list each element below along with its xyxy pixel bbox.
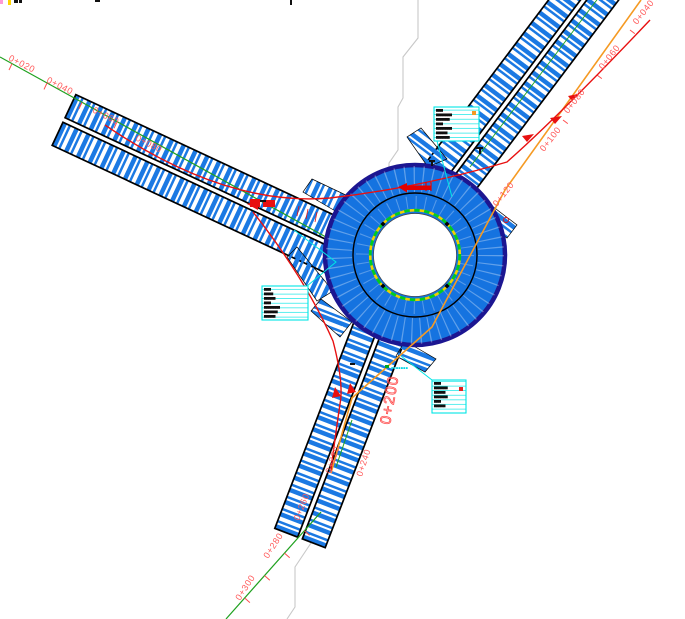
- annotation-line: ▆▆▆: [435, 122, 444, 126]
- marker-cell: [459, 387, 463, 391]
- annotation-line: ▆▆▆: [263, 287, 272, 291]
- centerline-bottom: [226, 512, 321, 619]
- station-label: 0+120: [491, 180, 516, 208]
- annotation-line: ▆▆▆▆: [263, 292, 274, 296]
- bus-stop-mark: [385, 365, 389, 368]
- annotation-line: ▆▆▆: [435, 108, 444, 112]
- annotation-line: ▆▆▆▆▆▆: [433, 395, 448, 399]
- annotation-line: ▆▆▆▆▆: [435, 131, 448, 135]
- station-label: 0+020: [7, 53, 37, 75]
- station-label: 0+040: [631, 0, 656, 26]
- annotation-line: ▆▆▆: [263, 301, 272, 305]
- road-note-text: ▪▪▪▪▪▪▪: [391, 366, 409, 370]
- marker-cell: [472, 111, 476, 115]
- annotation-line: ▆▆▆▆▆: [433, 404, 446, 408]
- annotation-line: ▆▆▆▆▆▆: [435, 135, 450, 139]
- annotation-box-bottom: ▆▆▆ ▆▆▆▆▆▆ ▆▆▆▆▆ ▆▆▆▆▆▆ ▆▆▆ ▆▆▆▆▆: [401, 356, 466, 413]
- annotation-line: ▆▆▆: [433, 399, 442, 403]
- annotation-line: ▆▆▆: [433, 381, 442, 385]
- arm-left: [52, 95, 348, 273]
- central-island: [374, 214, 457, 297]
- annotation-line: ▆▆▆▆▆▆: [263, 310, 278, 314]
- annotation-line: ▆▆▆▆▆: [263, 314, 276, 318]
- annotation-line: ▆▆▆▆▆: [433, 390, 446, 394]
- station-label: 0+080: [562, 87, 587, 115]
- arm-right: [425, 0, 632, 197]
- cad-canvas[interactable]: 0+020 0+040 0+060 0+080 0+040 0+060 0+08…: [0, 0, 685, 619]
- roundabout: [325, 165, 505, 345]
- annotation-line: ▆▆▆▆▆▆▆: [435, 113, 453, 117]
- annotation-line: ▆▆▆▆▆▆▆: [435, 126, 453, 130]
- annotation-line: ▆▆▆▆▆▆: [435, 117, 450, 121]
- edge-marks: [0, 0, 292, 5]
- annotation-line: ▆▆▆▆▆: [263, 296, 276, 300]
- station-label: 0+040: [45, 75, 75, 97]
- annotation-line: ▆▆▆▆▆▆▆: [263, 305, 281, 309]
- annotation-line: ▆▆▆▆▆▆: [433, 386, 448, 390]
- roundabout-plan-svg: 0+020 0+040 0+060 0+080 0+040 0+060 0+08…: [0, 0, 685, 619]
